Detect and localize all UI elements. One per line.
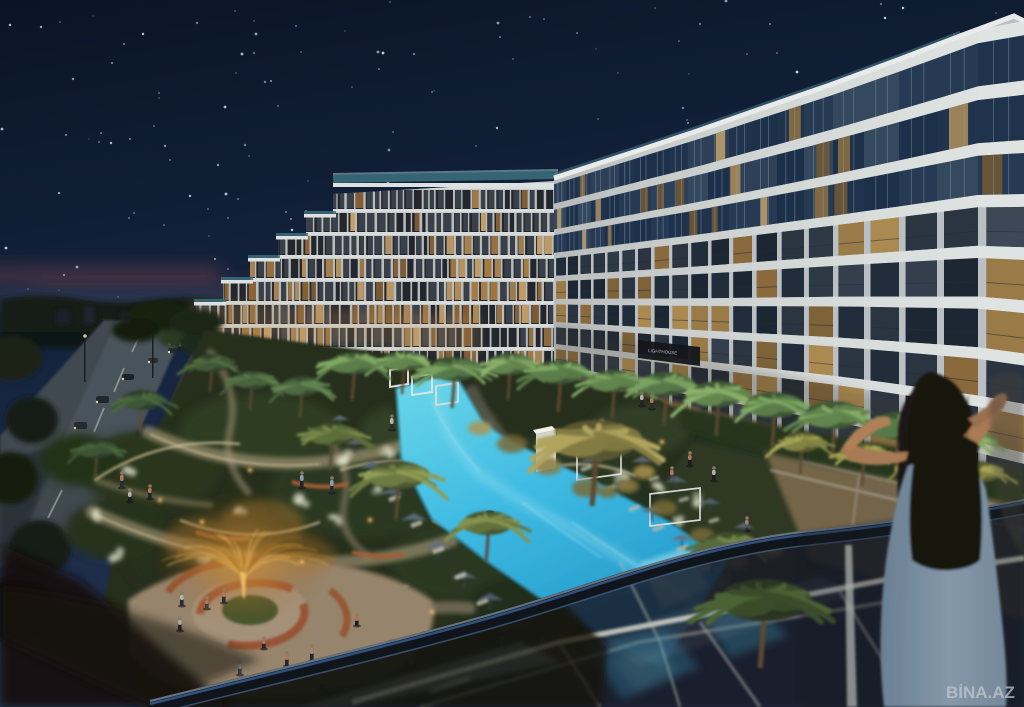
svg-text:BİNA.AZ: BİNA.AZ	[946, 683, 1015, 702]
